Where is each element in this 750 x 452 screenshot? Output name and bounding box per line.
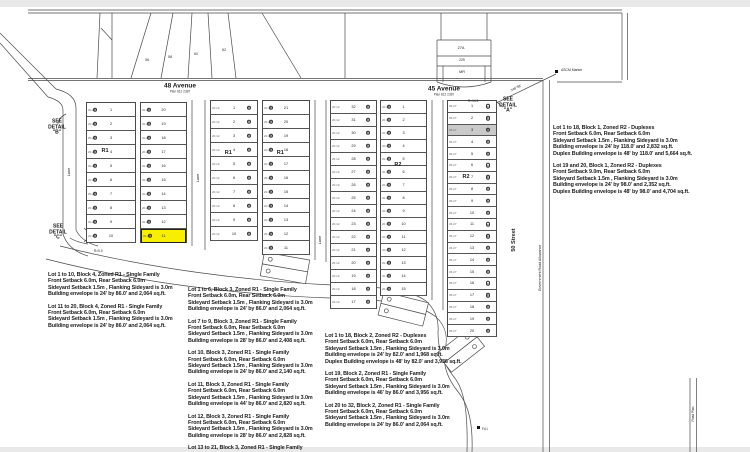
lot: 20.1210 (381, 218, 426, 231)
lane-label: Lane (196, 174, 200, 182)
lot: 20.1218 (263, 143, 309, 157)
note-line: Building envelope is 24' by 86.0' and 2,… (325, 422, 477, 428)
adjacent-lot-number: 56 (145, 58, 149, 62)
lot: 20.1217 (263, 157, 309, 171)
note-line: Building envelope is 28' by 86.0' and 2,… (188, 338, 338, 344)
lot: 20.1219 (331, 270, 376, 283)
adjacent-lot-number: 60 (194, 52, 198, 56)
lot: 20.1213 (263, 213, 309, 227)
lot: 36.276 (448, 160, 496, 172)
lot: 20.274 (87, 145, 135, 159)
lot: 20.1231 (331, 114, 376, 127)
lot: 36.2716 (448, 278, 496, 290)
lot: 20.1228 (331, 153, 376, 166)
lot: 36.279 (448, 195, 496, 207)
zoning-note-paragraph: Lot 1 to 10, Block 4, Zoned R1 - Single … (48, 272, 200, 298)
found-post-square (477, 426, 480, 429)
lot: 36.275 (448, 148, 496, 160)
block4-zone-label: R1 (101, 148, 108, 154)
survey-marker-label: ASCM Marker (561, 68, 582, 72)
street-label-48-avenue: 48 Avenue Plan 812 2387 (164, 83, 196, 94)
lot: 36.274 (448, 136, 496, 148)
lot: 20.1226 (331, 179, 376, 192)
lot: 36.2714 (448, 254, 496, 266)
lane-label: Lane (67, 168, 71, 176)
note-line: Building envelope is 44' by 86.0' and 2,… (188, 401, 338, 407)
see-detail-a-callout: SEE DETAIL "A" (499, 98, 517, 115)
note-line: Building envelope is 24' by 86.0' and 2,… (188, 369, 338, 375)
lot: 20.1212 (381, 244, 426, 257)
zoning-note-paragraph: Lot 11 to 20, Block 4, Zoned R1 - Single… (48, 304, 200, 330)
block2-zone-label: R2 (394, 162, 401, 168)
note-line: Duplex Building envelope is 48' by 82.0'… (325, 359, 477, 365)
radius-label: R=9.0 (94, 249, 103, 253)
lot: 20.2720 (141, 103, 186, 117)
lot: 20.276 (87, 173, 135, 187)
lot: 20.2715 (141, 173, 186, 187)
zoning-notes-block3: Lot 1 to 6, Block 3, Zoned R1 - Single F… (188, 287, 338, 452)
lot: 20.1214 (263, 199, 309, 213)
lot: 20.122 (211, 115, 257, 129)
lot: 20.124 (211, 143, 257, 157)
plan-number: Plan 812 2387 (164, 90, 196, 94)
lot: 36.2711 (448, 219, 496, 231)
road-allowance-label: Government Road Allowance (538, 245, 542, 292)
lot: 20.129 (211, 213, 257, 227)
adjacent-lot-number: 58 (168, 55, 172, 59)
lot: 36.278 (448, 184, 496, 196)
lot: 20.125 (381, 153, 426, 166)
lane-label: Lane (318, 236, 322, 244)
left-road-lines (0, 33, 98, 256)
block4-lot-column: 20.272020.271920.271820.271720.271620.27… (140, 102, 187, 243)
lot: 20.127 (211, 185, 257, 199)
zoning-note-paragraph: Lot 19 and 20, Block 1, Zoned R2 - Duple… (553, 163, 745, 195)
note-line: Building envelope is 24' by 86.0' and 2,… (48, 291, 200, 297)
lot: 36.2710 (448, 207, 496, 219)
lot: 20.1216 (263, 171, 309, 185)
lot: 20.1220 (263, 115, 309, 129)
see-detail-b-callout: SEE DETAIL "B" (48, 120, 66, 137)
lot: 36.2719 (448, 313, 496, 325)
lot: 20.1232 (331, 101, 376, 114)
lot: 20.123 (381, 127, 426, 140)
note-line: Building envelope is 24' by 86.0' and 2,… (48, 323, 200, 329)
lot: 20.1227 (331, 166, 376, 179)
lot: 20.1225 (331, 192, 376, 205)
lot: 20.123 (211, 129, 257, 143)
lot: 20.272 (87, 117, 135, 131)
lot: 20.1221 (331, 244, 376, 257)
found-post-label: Fd.I. (482, 427, 488, 431)
lot: 20.1215 (263, 185, 309, 199)
lot: 20.1221 (263, 101, 309, 115)
zoning-note-paragraph: Lot 11, Block 3, Zoned R1 - Single Famil… (188, 382, 338, 408)
block3-lot-column: 20.12120.12220.12320.12420.12520.12620.1… (210, 100, 258, 241)
radius-label: R=14.5 (468, 99, 478, 103)
lot: 20.1223 (331, 218, 376, 231)
lot: 20.121 (211, 101, 257, 115)
adjacent-lot-number: 62 (222, 48, 226, 52)
lot: 20.128 (211, 199, 257, 213)
angled-lots-block3 (260, 252, 309, 284)
zoning-note-paragraph: Lot 1 to 18, Block 1, Zoned R2 - Duplexe… (553, 125, 745, 157)
street-label-45-avenue: 45 Avenue Plan 812 2387 (428, 86, 460, 97)
zoning-note-paragraph: Lot 19, Block 2, Zoned R1 - Single Famil… (325, 371, 477, 397)
lot: 20.122 (381, 114, 426, 127)
lot: 20.125 (211, 157, 257, 171)
corner-parcel-label: 27A (458, 46, 465, 50)
see-detail-c-callout: SEE DETAIL "C" (49, 225, 67, 242)
zoning-notes-block4: Lot 1 to 10, Block 4, Zoned R1 - Single … (48, 272, 200, 335)
note-line: Building envelope is 28' by 86.0' and 2,… (188, 433, 338, 439)
lot: 20.279 (87, 215, 135, 229)
block1-zone-label: R2 (462, 174, 469, 180)
lot: 20.2712 (141, 215, 186, 229)
lot: 20.277 (87, 187, 135, 201)
lot: 20.129 (381, 205, 426, 218)
angled-lots-block2 (378, 292, 428, 326)
block3-zone-label: R1 (225, 150, 232, 156)
lot: 20.1220 (331, 257, 376, 270)
lot: 20.2719 (141, 117, 186, 131)
corner-parcel-label: 229 (459, 58, 465, 62)
block1-lot-column: 36.27136.27236.27336.27436.27536.27636.2… (447, 100, 497, 337)
block4-lot-column: 20.27120.27220.27320.27420.27520.27620.2… (86, 102, 136, 243)
lot: 20.2716 (141, 159, 186, 173)
lot: 20.1222 (331, 231, 376, 244)
lot: 20.126 (211, 171, 257, 185)
lot: 36.2713 (448, 243, 496, 255)
lot: 20.1230 (331, 127, 376, 140)
zoning-note-paragraph: Lot 1 to 18, Block 2, Zoned R2 - Duplexe… (325, 333, 477, 365)
zoning-note-paragraph: Lot 20 to 32, Block 2, Zoned R1 - Single… (325, 403, 477, 429)
lot: 36.2715 (448, 266, 496, 278)
zoning-note-paragraph: Lot 12, Block 3, Zoned R1 - Single Famil… (188, 414, 338, 440)
lot: 20.2718 (141, 131, 186, 145)
lot: 20.2710 (87, 229, 135, 243)
lot: 20.2714 (141, 187, 186, 201)
plat-page: 48 Avenue Plan 812 2387 45 Avenue Plan 8… (0, 0, 750, 452)
zoning-note-paragraph: Lot 1 to 6, Block 3, Zoned R1 - Single F… (188, 287, 338, 313)
block2-lot-column: 20.123220.123120.123020.122920.122820.12… (330, 100, 377, 309)
adjacent-lot-stub-lines (97, 13, 345, 78)
lot: 20.278 (87, 201, 135, 215)
block3-zone-label: R1 (277, 150, 284, 156)
lot: 20.1211 (381, 231, 426, 244)
lot: 20.1224 (331, 205, 376, 218)
survey-monument-icon (555, 70, 558, 73)
lot: 36.2717 (448, 290, 496, 302)
note-line: Building envelope is 46' by 86.0' and 3,… (325, 390, 477, 396)
block2-lot-column: 20.12120.12220.12320.12420.12520.12620.1… (380, 100, 427, 296)
lot: 20.275 (87, 159, 135, 173)
lot: 20.1210 (211, 227, 257, 241)
lot: 36.273 (448, 125, 496, 137)
lot: 20.126 (381, 166, 426, 179)
lot: 20.1211 (263, 241, 309, 255)
lot: 20.2713 (141, 201, 186, 215)
highlighted-lot[interactable]: 20.2711 (141, 229, 186, 243)
note-line: Duplex Building envelope is 48' by 118.0… (553, 151, 745, 157)
lot: 20.273 (87, 131, 135, 145)
lot: 36.277 (448, 172, 496, 184)
lot: 20.127 (381, 179, 426, 192)
corner-parcel-lines (437, 13, 491, 87)
corner-parcel-label: MR (459, 70, 465, 74)
street-label-50-street: 50 Street (511, 228, 517, 251)
lot: 20.1213 (381, 257, 426, 270)
lot: 20.121 (381, 101, 426, 114)
note-line: Duplex Building envelope is 48' by 98.0'… (553, 189, 745, 195)
lot: 36.272 (448, 113, 496, 125)
lot: 20.271 (87, 103, 135, 117)
road-plan-label: Road Plan (691, 407, 695, 422)
lot: 20.128 (381, 192, 426, 205)
lot: 20.1212 (263, 227, 309, 241)
lot: 36.2718 (448, 302, 496, 314)
zoning-note-paragraph: Lot 10, Block 3, Zoned R1 - Single Famil… (188, 350, 338, 376)
lot: 20.2717 (141, 145, 186, 159)
zoning-note-paragraph: Lot 7 to 9, Block 3, Zoned R1 - Single F… (188, 319, 338, 345)
lot: 20.1219 (263, 129, 309, 143)
lot: 20.1229 (331, 140, 376, 153)
zoning-notes-block2: Lot 1 to 18, Block 2, Zoned R2 - Duplexe… (325, 333, 477, 434)
lot: 36.2712 (448, 231, 496, 243)
zoning-note-paragraph: Lot 13 to 21, Block 3, Zoned R1 - Single… (188, 445, 338, 452)
lot: 20.124 (381, 140, 426, 153)
plan-number: Plan 812 2387 (428, 93, 460, 97)
note-line: Building envelope is 24' by 86.0' and 2,… (188, 306, 338, 312)
zoning-notes-block1: Lot 1 to 18, Block 1, Zoned R2 - Duplexe… (553, 125, 745, 201)
lot: 20.1214 (381, 270, 426, 283)
block3-lot-column: 20.122120.122020.121920.121820.121720.12… (262, 100, 310, 255)
lot: 20.1215 (381, 283, 426, 296)
